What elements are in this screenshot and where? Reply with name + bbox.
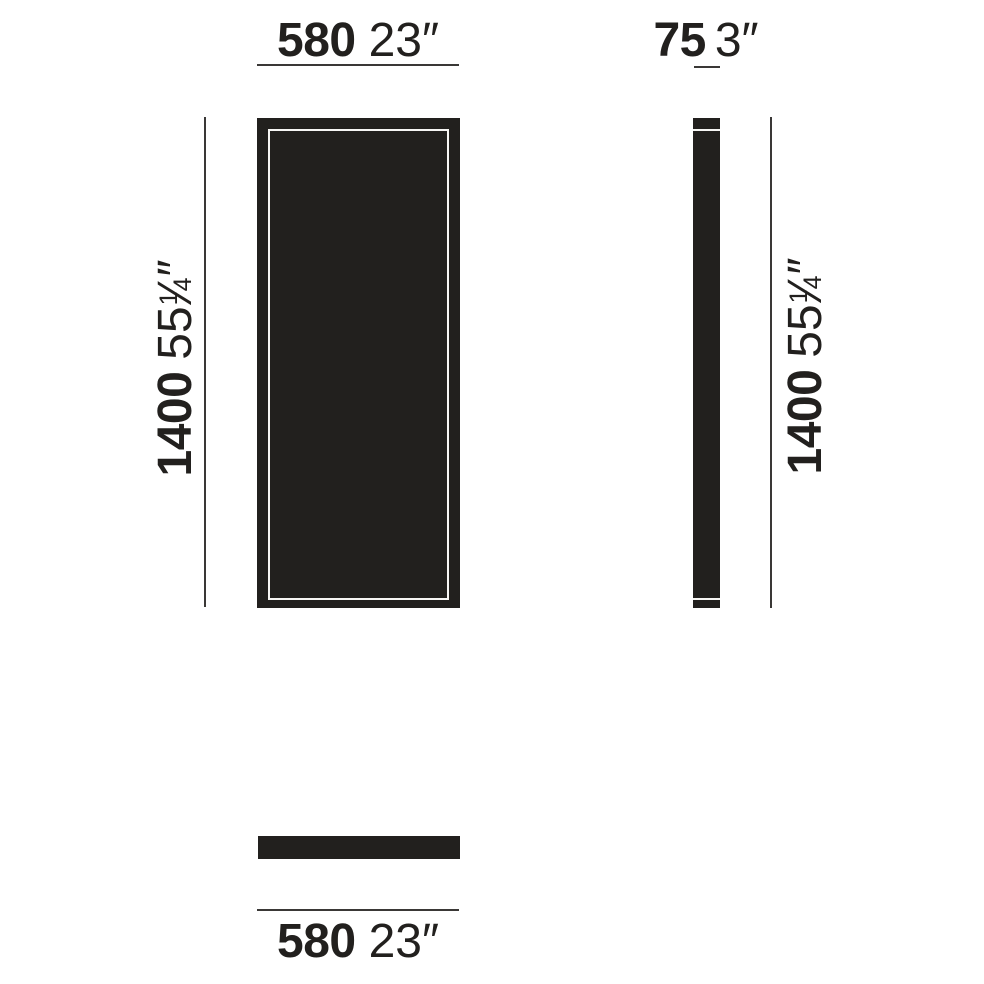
top-view-panel <box>258 836 460 859</box>
height-imperial-whole-right: 55 <box>779 304 832 357</box>
front-width-metric: 580 <box>277 17 356 65</box>
bottom-width-metric: 580 <box>277 918 356 966</box>
depth-dimension-line <box>694 66 720 68</box>
height-metric-left: 1400 <box>152 372 200 477</box>
front-panel-frame-outline <box>268 129 449 600</box>
front-view-panel <box>257 118 460 608</box>
inch-mark-right: ″ <box>779 258 832 275</box>
depth-metric: 75 <box>653 17 705 65</box>
depth-imperial: 3″ <box>715 17 759 65</box>
height-imperial-whole-left: 55 <box>149 306 202 359</box>
front-width-label: 580 23″ <box>257 17 459 65</box>
front-width-imperial: 23″ <box>369 17 439 65</box>
side-panel-bottom-seam <box>693 598 720 600</box>
front-width-dimension-line <box>257 64 459 66</box>
height-label-right: 1400 551⁄4″ <box>782 258 830 475</box>
side-view-panel <box>693 118 720 608</box>
inch-mark-left: ″ <box>149 260 202 277</box>
bottom-width-imperial: 23″ <box>369 918 439 966</box>
height-dimension-line-left <box>204 117 206 607</box>
side-panel-top-seam <box>693 129 720 131</box>
fraction-denominator-right: 4 <box>799 276 827 290</box>
height-imperial-left: 551⁄4″ <box>152 260 200 360</box>
height-metric-right: 1400 <box>782 370 830 475</box>
dimension-drawing-canvas: 580 23″ 1400 551⁄4″ 75 3″ 1400 551⁄4″ 58… <box>0 0 984 984</box>
height-dimension-line-right <box>770 117 772 608</box>
height-label-left: 1400 551⁄4″ <box>152 260 200 477</box>
depth-label: 75 3″ <box>626 17 786 65</box>
fraction-denominator-left: 4 <box>169 278 197 292</box>
height-imperial-right: 551⁄4″ <box>782 258 830 358</box>
bottom-width-label: 580 23″ <box>257 918 459 966</box>
bottom-width-dimension-line <box>257 909 459 911</box>
